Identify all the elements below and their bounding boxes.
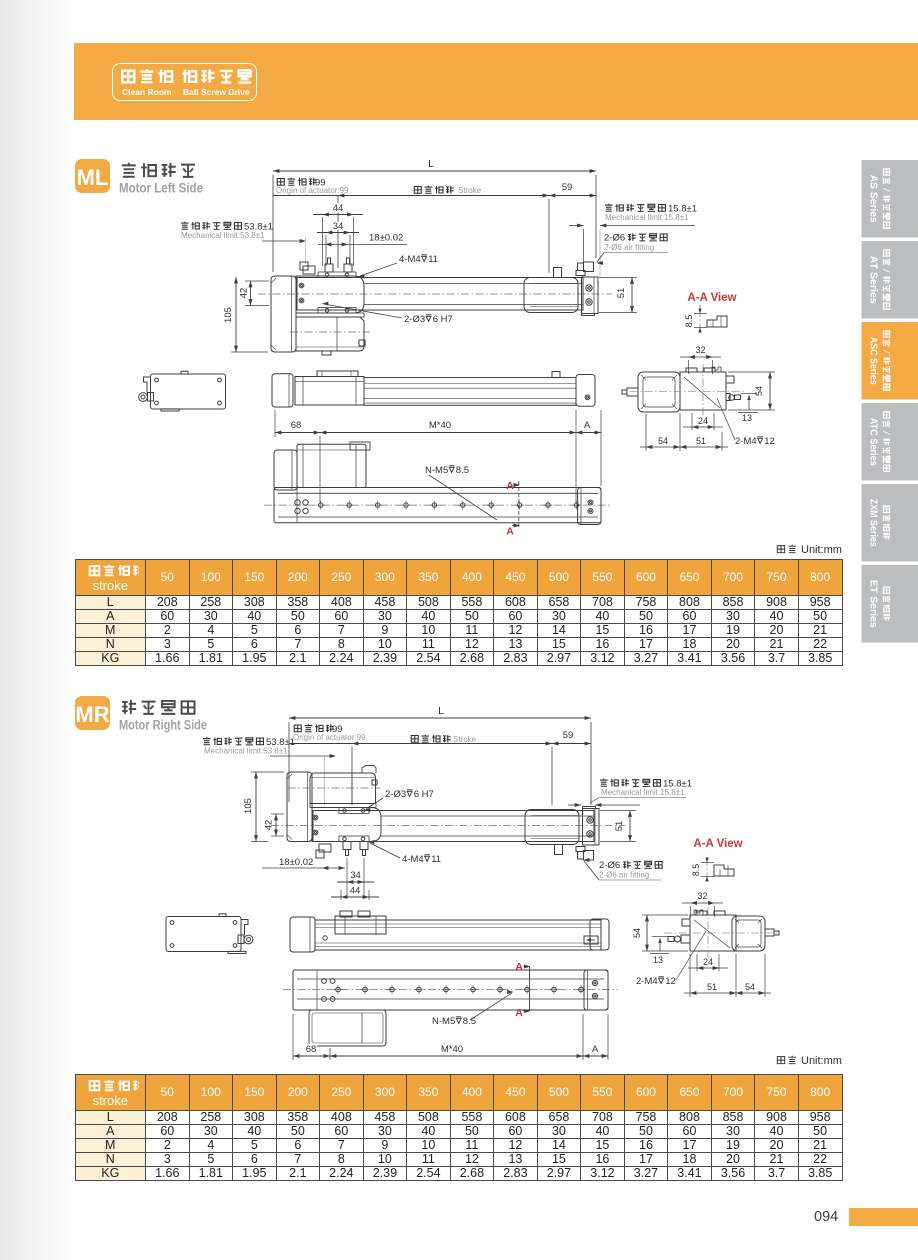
svg-text:ZXM Series: ZXM Series (867, 499, 878, 547)
svg-text:ATC Series: ATC Series (867, 418, 878, 466)
svg-text:AS Series: AS Series (867, 175, 878, 223)
svg-text:ET Series: ET Series (867, 580, 878, 628)
svg-text:ASC Series: ASC Series (867, 337, 878, 385)
svg-text:AT Series: AT Series (867, 256, 878, 304)
